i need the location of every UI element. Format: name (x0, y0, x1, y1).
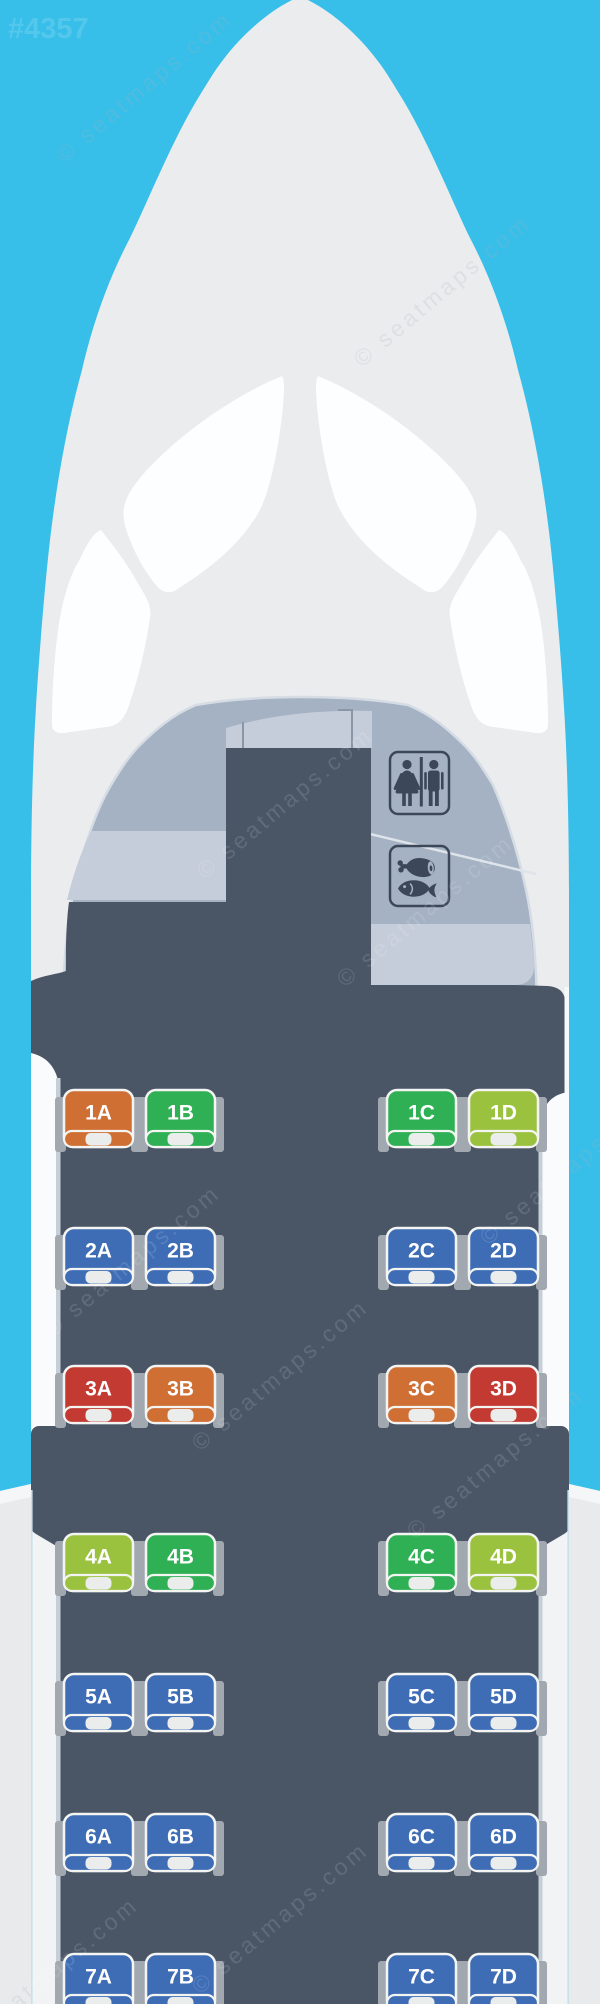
svg-text:3D: 3D (490, 1378, 517, 1401)
svg-text:2A: 2A (85, 1240, 112, 1263)
svg-text:3C: 3C (408, 1378, 435, 1401)
svg-text:#4357: #4357 (8, 13, 89, 45)
svg-text:1D: 1D (490, 1102, 517, 1125)
svg-text:5A: 5A (85, 1686, 112, 1709)
svg-text:7C: 7C (408, 1966, 435, 1989)
svg-text:7D: 7D (490, 1966, 517, 1989)
svg-text:5D: 5D (490, 1686, 517, 1709)
svg-text:4D: 4D (490, 1546, 517, 1569)
svg-text:1C: 1C (408, 1102, 435, 1125)
svg-text:6A: 6A (85, 1826, 112, 1849)
svg-text:1B: 1B (167, 1102, 194, 1125)
svg-text:3B: 3B (167, 1378, 194, 1401)
svg-text:3A: 3A (85, 1378, 112, 1401)
svg-text:7A: 7A (85, 1966, 112, 1989)
svg-text:4B: 4B (167, 1546, 194, 1569)
svg-text:5C: 5C (408, 1686, 435, 1709)
svg-text:2C: 2C (408, 1240, 435, 1263)
svg-text:4C: 4C (408, 1546, 435, 1569)
svg-text:4A: 4A (85, 1546, 112, 1569)
svg-text:6D: 6D (490, 1826, 517, 1849)
svg-text:6C: 6C (408, 1826, 435, 1849)
svg-text:5B: 5B (167, 1686, 194, 1709)
svg-text:6B: 6B (167, 1826, 194, 1849)
svg-text:1A: 1A (85, 1102, 112, 1125)
